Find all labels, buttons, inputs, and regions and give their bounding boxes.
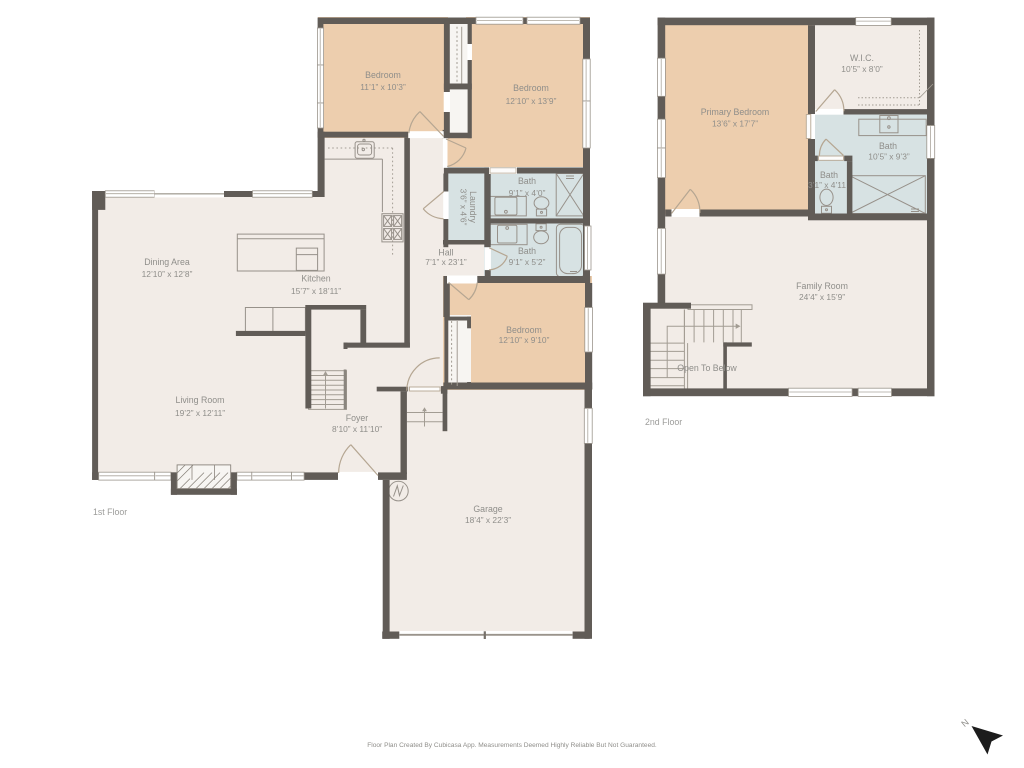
svg-text:9’1” x 5’2”: 9’1” x 5’2” xyxy=(509,257,546,267)
svg-text:8’10” x 11’10”: 8’10” x 11’10” xyxy=(332,424,382,434)
svg-text:3’1” x 4’11: 3’1” x 4’11 xyxy=(808,180,846,190)
svg-text:Living Room: Living Room xyxy=(176,395,225,405)
svg-text:3’6” x 4’6”: 3’6” x 4’6” xyxy=(459,189,469,226)
svg-text:Garage: Garage xyxy=(473,504,502,514)
svg-text:Foyer: Foyer xyxy=(346,413,369,423)
svg-text:24’4” x 15’9”: 24’4” x 15’9” xyxy=(799,292,845,302)
svg-text:Bedroom: Bedroom xyxy=(365,70,401,80)
svg-text:W.I.C.: W.I.C. xyxy=(850,53,874,63)
svg-text:Floor Plan Created By Cubicasa: Floor Plan Created By Cubicasa App. Meas… xyxy=(367,742,657,749)
svg-text:Bedroom: Bedroom xyxy=(506,325,542,335)
svg-text:13’6” x 17’7”: 13’6” x 17’7” xyxy=(712,119,758,129)
svg-text:10’5” x 8’0”: 10’5” x 8’0” xyxy=(841,64,883,74)
svg-text:Family Room: Family Room xyxy=(796,281,848,291)
svg-text:12’10” x 9’10”: 12’10” x 9’10” xyxy=(499,335,550,345)
svg-text:Bath: Bath xyxy=(518,176,536,186)
svg-text:Kitchen: Kitchen xyxy=(301,274,330,284)
svg-text:Laundry: Laundry xyxy=(468,191,478,223)
svg-text:Bath: Bath xyxy=(879,141,897,151)
svg-text:10’5” x 9’3”: 10’5” x 9’3” xyxy=(868,152,910,162)
svg-text:2nd Floor: 2nd Floor xyxy=(645,417,682,427)
svg-text:11’1” x 10’3”: 11’1” x 10’3” xyxy=(360,82,406,92)
svg-text:Hall: Hall xyxy=(438,248,453,258)
svg-text:Dining Area: Dining Area xyxy=(144,257,190,267)
svg-text:18’4” x 22’3”: 18’4” x 22’3” xyxy=(465,515,511,525)
svg-text:12’10” x 12’8”: 12’10” x 12’8” xyxy=(142,269,193,279)
svg-text:7’1” x 23’1”: 7’1” x 23’1” xyxy=(425,257,467,267)
svg-text:19’2” x 12’11”: 19’2” x 12’11” xyxy=(175,408,225,418)
svg-text:1st Floor: 1st Floor xyxy=(93,507,127,517)
svg-text:Bath: Bath xyxy=(518,246,536,256)
svg-text:15’7” x 18’11”: 15’7” x 18’11” xyxy=(291,286,341,296)
svg-text:Bath: Bath xyxy=(820,170,838,180)
svg-text:Bedroom: Bedroom xyxy=(513,83,549,93)
svg-text:Open To Below: Open To Below xyxy=(677,363,737,373)
svg-text:Primary Bedroom: Primary Bedroom xyxy=(701,107,769,117)
svg-text:9’1” x 4’0”: 9’1” x 4’0” xyxy=(509,188,546,198)
svg-text:12’10” x 13’9”: 12’10” x 13’9” xyxy=(506,96,557,106)
